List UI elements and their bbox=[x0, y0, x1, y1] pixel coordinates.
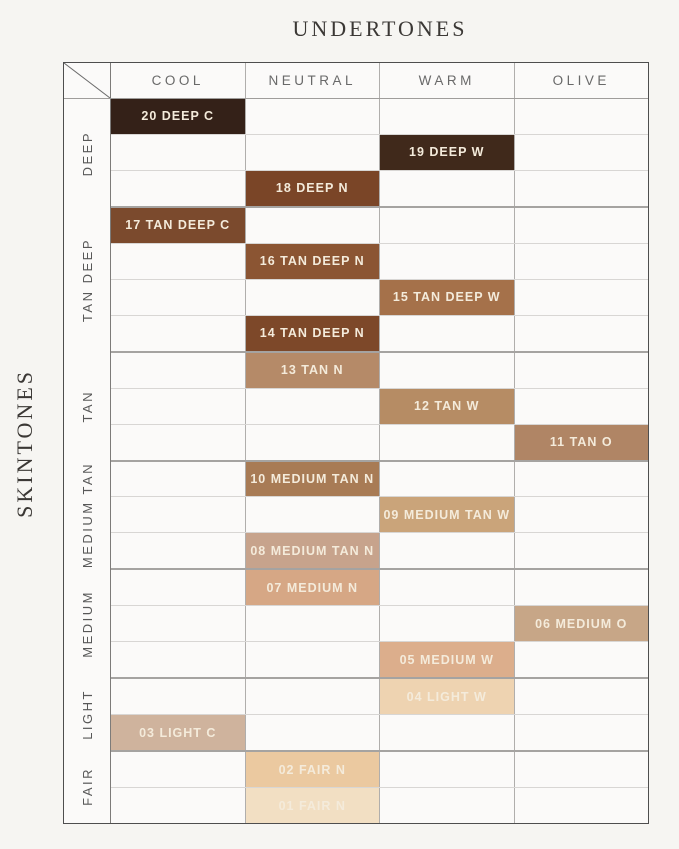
empty-cell bbox=[514, 353, 649, 388]
shade-cell: 09 MEDIUM TAN W bbox=[379, 497, 514, 532]
empty-cell bbox=[514, 316, 649, 351]
empty-cell bbox=[514, 788, 649, 823]
empty-cell bbox=[111, 425, 245, 460]
empty-cell bbox=[245, 679, 380, 714]
shade-cell: 17 TAN DEEP C bbox=[111, 208, 245, 243]
empty-cell bbox=[111, 642, 245, 677]
corner-cell bbox=[64, 63, 111, 98]
empty-cell bbox=[245, 425, 380, 460]
empty-cell bbox=[379, 99, 514, 134]
shade-cell: 19 DEEP W bbox=[379, 135, 514, 170]
empty-cell bbox=[111, 389, 245, 424]
shade-cell: 11 TAN O bbox=[514, 425, 649, 460]
empty-cell bbox=[514, 570, 649, 605]
group-label: MEDIUM TAN bbox=[80, 462, 95, 568]
shade-row: 17 TAN DEEP C bbox=[111, 206, 648, 243]
empty-cell bbox=[379, 171, 514, 206]
empty-cell bbox=[379, 533, 514, 568]
empty-cell bbox=[514, 99, 649, 134]
empty-cell bbox=[245, 606, 380, 641]
empty-cell bbox=[111, 280, 245, 315]
empty-cell bbox=[245, 280, 380, 315]
shade-row: 08 MEDIUM TAN N bbox=[111, 532, 648, 568]
shade-cell: 18 DEEP N bbox=[245, 171, 380, 206]
shade-chart: UNDERTONES SKINTONES COOL NEUTRAL WARM O… bbox=[0, 0, 679, 849]
empty-cell bbox=[514, 244, 649, 279]
empty-cell bbox=[111, 353, 245, 388]
shade-row: 01 FAIR N bbox=[111, 787, 648, 823]
group-tan: TAN bbox=[64, 352, 110, 461]
empty-cell bbox=[379, 353, 514, 388]
shade-label: 04 LIGHT W bbox=[407, 690, 487, 704]
diagonal-divider-icon bbox=[64, 63, 110, 98]
grid-body: DEEP TAN DEEP TAN MEDIUM TAN MEDIUM LIGH… bbox=[64, 99, 648, 823]
shade-cell: 16 TAN DEEP N bbox=[245, 244, 380, 279]
shade-cell: 04 LIGHT W bbox=[379, 679, 514, 714]
shade-label: 11 TAN O bbox=[550, 435, 613, 449]
empty-cell bbox=[245, 715, 380, 750]
empty-cell bbox=[514, 497, 649, 532]
shade-label: 12 TAN W bbox=[414, 399, 479, 413]
empty-cell bbox=[245, 389, 380, 424]
shade-cell: 15 TAN DEEP W bbox=[379, 280, 514, 315]
shade-label: 20 DEEP C bbox=[141, 109, 214, 123]
shade-label: 19 DEEP W bbox=[409, 145, 484, 159]
shade-row: 07 MEDIUM N bbox=[111, 568, 648, 605]
group-label: TAN DEEP bbox=[80, 238, 95, 322]
empty-cell bbox=[111, 788, 245, 823]
header-warm: WARM bbox=[379, 63, 514, 98]
shade-label: 01 FAIR N bbox=[279, 799, 346, 813]
shade-label: 18 DEEP N bbox=[276, 181, 349, 195]
shade-cell: 05 MEDIUM W bbox=[379, 642, 514, 677]
group-medium-tan: MEDIUM TAN bbox=[64, 461, 110, 570]
shade-label: 09 MEDIUM TAN W bbox=[383, 508, 510, 522]
empty-cell bbox=[379, 788, 514, 823]
shade-row: 15 TAN DEEP W bbox=[111, 279, 648, 315]
shade-row: 03 LIGHT C bbox=[111, 714, 648, 750]
shade-row: 06 MEDIUM O bbox=[111, 605, 648, 641]
group-tan-deep: TAN DEEP bbox=[64, 208, 110, 353]
shade-row: 10 MEDIUM TAN N bbox=[111, 460, 648, 497]
empty-cell bbox=[111, 679, 245, 714]
empty-cell bbox=[111, 135, 245, 170]
empty-cell bbox=[514, 715, 649, 750]
empty-cell bbox=[379, 208, 514, 243]
empty-cell bbox=[379, 715, 514, 750]
empty-cell bbox=[379, 425, 514, 460]
empty-cell bbox=[514, 679, 649, 714]
shade-cell: 06 MEDIUM O bbox=[514, 606, 649, 641]
skintones-title: SKINTONES bbox=[12, 369, 38, 518]
empty-cell bbox=[514, 462, 649, 497]
empty-cell bbox=[245, 135, 380, 170]
empty-cell bbox=[514, 208, 649, 243]
shade-label: 15 TAN DEEP W bbox=[393, 290, 501, 304]
group-light: LIGHT bbox=[64, 678, 110, 750]
empty-cell bbox=[245, 497, 380, 532]
shade-label: 03 LIGHT C bbox=[139, 726, 216, 740]
empty-cell bbox=[111, 497, 245, 532]
empty-cell bbox=[379, 462, 514, 497]
shade-label: 13 TAN N bbox=[281, 363, 344, 377]
shade-cell: 02 FAIR N bbox=[245, 752, 380, 787]
empty-cell bbox=[514, 171, 649, 206]
empty-cell bbox=[379, 606, 514, 641]
shade-row: 18 DEEP N bbox=[111, 170, 648, 206]
shade-cell: 07 MEDIUM N bbox=[245, 570, 380, 605]
shade-cell: 10 MEDIUM TAN N bbox=[245, 462, 380, 497]
shade-label: 02 FAIR N bbox=[279, 763, 346, 777]
shade-cell: 13 TAN N bbox=[245, 353, 380, 388]
shade-row: 19 DEEP W bbox=[111, 134, 648, 170]
empty-cell bbox=[514, 135, 649, 170]
group-fair: FAIR bbox=[64, 751, 110, 823]
undertone-header-row: COOL NEUTRAL WARM OLIVE bbox=[64, 63, 648, 99]
empty-cell bbox=[379, 570, 514, 605]
shade-row: 20 DEEP C bbox=[111, 99, 648, 134]
shade-label: 14 TAN DEEP N bbox=[260, 326, 365, 340]
shade-label: 07 MEDIUM N bbox=[266, 581, 358, 595]
empty-cell bbox=[245, 99, 380, 134]
shade-cell: 08 MEDIUM TAN N bbox=[245, 533, 380, 568]
shade-label: 10 MEDIUM TAN N bbox=[250, 472, 374, 486]
shade-row: 12 TAN W bbox=[111, 388, 648, 424]
shade-row: 04 LIGHT W bbox=[111, 677, 648, 714]
empty-cell bbox=[514, 752, 649, 787]
shade-cell: 20 DEEP C bbox=[111, 99, 245, 134]
empty-cell bbox=[379, 244, 514, 279]
shade-row: 11 TAN O bbox=[111, 424, 648, 460]
group-deep: DEEP bbox=[64, 99, 110, 208]
shade-row: 02 FAIR N bbox=[111, 750, 648, 787]
empty-cell bbox=[514, 389, 649, 424]
empty-cell bbox=[111, 171, 245, 206]
cell-rows: 20 DEEP C19 DEEP W18 DEEP N17 TAN DEEP C… bbox=[111, 99, 648, 823]
header-olive: OLIVE bbox=[514, 63, 649, 98]
shade-cell: 12 TAN W bbox=[379, 389, 514, 424]
shade-label: 17 TAN DEEP C bbox=[125, 218, 230, 232]
shade-grid: COOL NEUTRAL WARM OLIVE DEEP TAN DEEP TA… bbox=[63, 62, 649, 824]
group-label: LIGHT bbox=[80, 689, 95, 740]
header-cool: COOL bbox=[111, 63, 245, 98]
empty-cell bbox=[379, 316, 514, 351]
empty-cell bbox=[111, 316, 245, 351]
shade-label: 16 TAN DEEP N bbox=[260, 254, 365, 268]
shade-row: 16 TAN DEEP N bbox=[111, 243, 648, 279]
shade-row: 14 TAN DEEP N bbox=[111, 315, 648, 351]
skintones-title-wrap: SKINTONES bbox=[4, 62, 46, 824]
empty-cell bbox=[111, 462, 245, 497]
empty-cell bbox=[111, 244, 245, 279]
header-neutral: NEUTRAL bbox=[245, 63, 380, 98]
empty-cell bbox=[514, 280, 649, 315]
group-label: MEDIUM bbox=[80, 590, 95, 658]
empty-cell bbox=[245, 642, 380, 677]
undertones-title: UNDERTONES bbox=[110, 16, 650, 42]
empty-cell bbox=[111, 752, 245, 787]
shade-cell: 01 FAIR N bbox=[245, 788, 380, 823]
shade-cell: 03 LIGHT C bbox=[111, 715, 245, 750]
empty-cell bbox=[514, 642, 649, 677]
shade-label: 08 MEDIUM TAN N bbox=[250, 544, 374, 558]
shade-label: 05 MEDIUM W bbox=[400, 653, 494, 667]
group-label: TAN bbox=[80, 390, 95, 423]
empty-cell bbox=[111, 570, 245, 605]
group-label: FAIR bbox=[80, 767, 95, 806]
shade-cell: 14 TAN DEEP N bbox=[245, 316, 380, 351]
empty-cell bbox=[111, 533, 245, 568]
empty-cell bbox=[379, 752, 514, 787]
group-label: DEEP bbox=[80, 131, 95, 176]
empty-cell bbox=[111, 606, 245, 641]
group-medium: MEDIUM bbox=[64, 570, 110, 679]
skintone-label-column: DEEP TAN DEEP TAN MEDIUM TAN MEDIUM LIGH… bbox=[64, 99, 111, 823]
empty-cell bbox=[245, 208, 380, 243]
shade-row: 09 MEDIUM TAN W bbox=[111, 496, 648, 532]
shade-label: 06 MEDIUM O bbox=[535, 617, 627, 631]
shade-row: 05 MEDIUM W bbox=[111, 641, 648, 677]
empty-cell bbox=[514, 533, 649, 568]
shade-row: 13 TAN N bbox=[111, 351, 648, 388]
